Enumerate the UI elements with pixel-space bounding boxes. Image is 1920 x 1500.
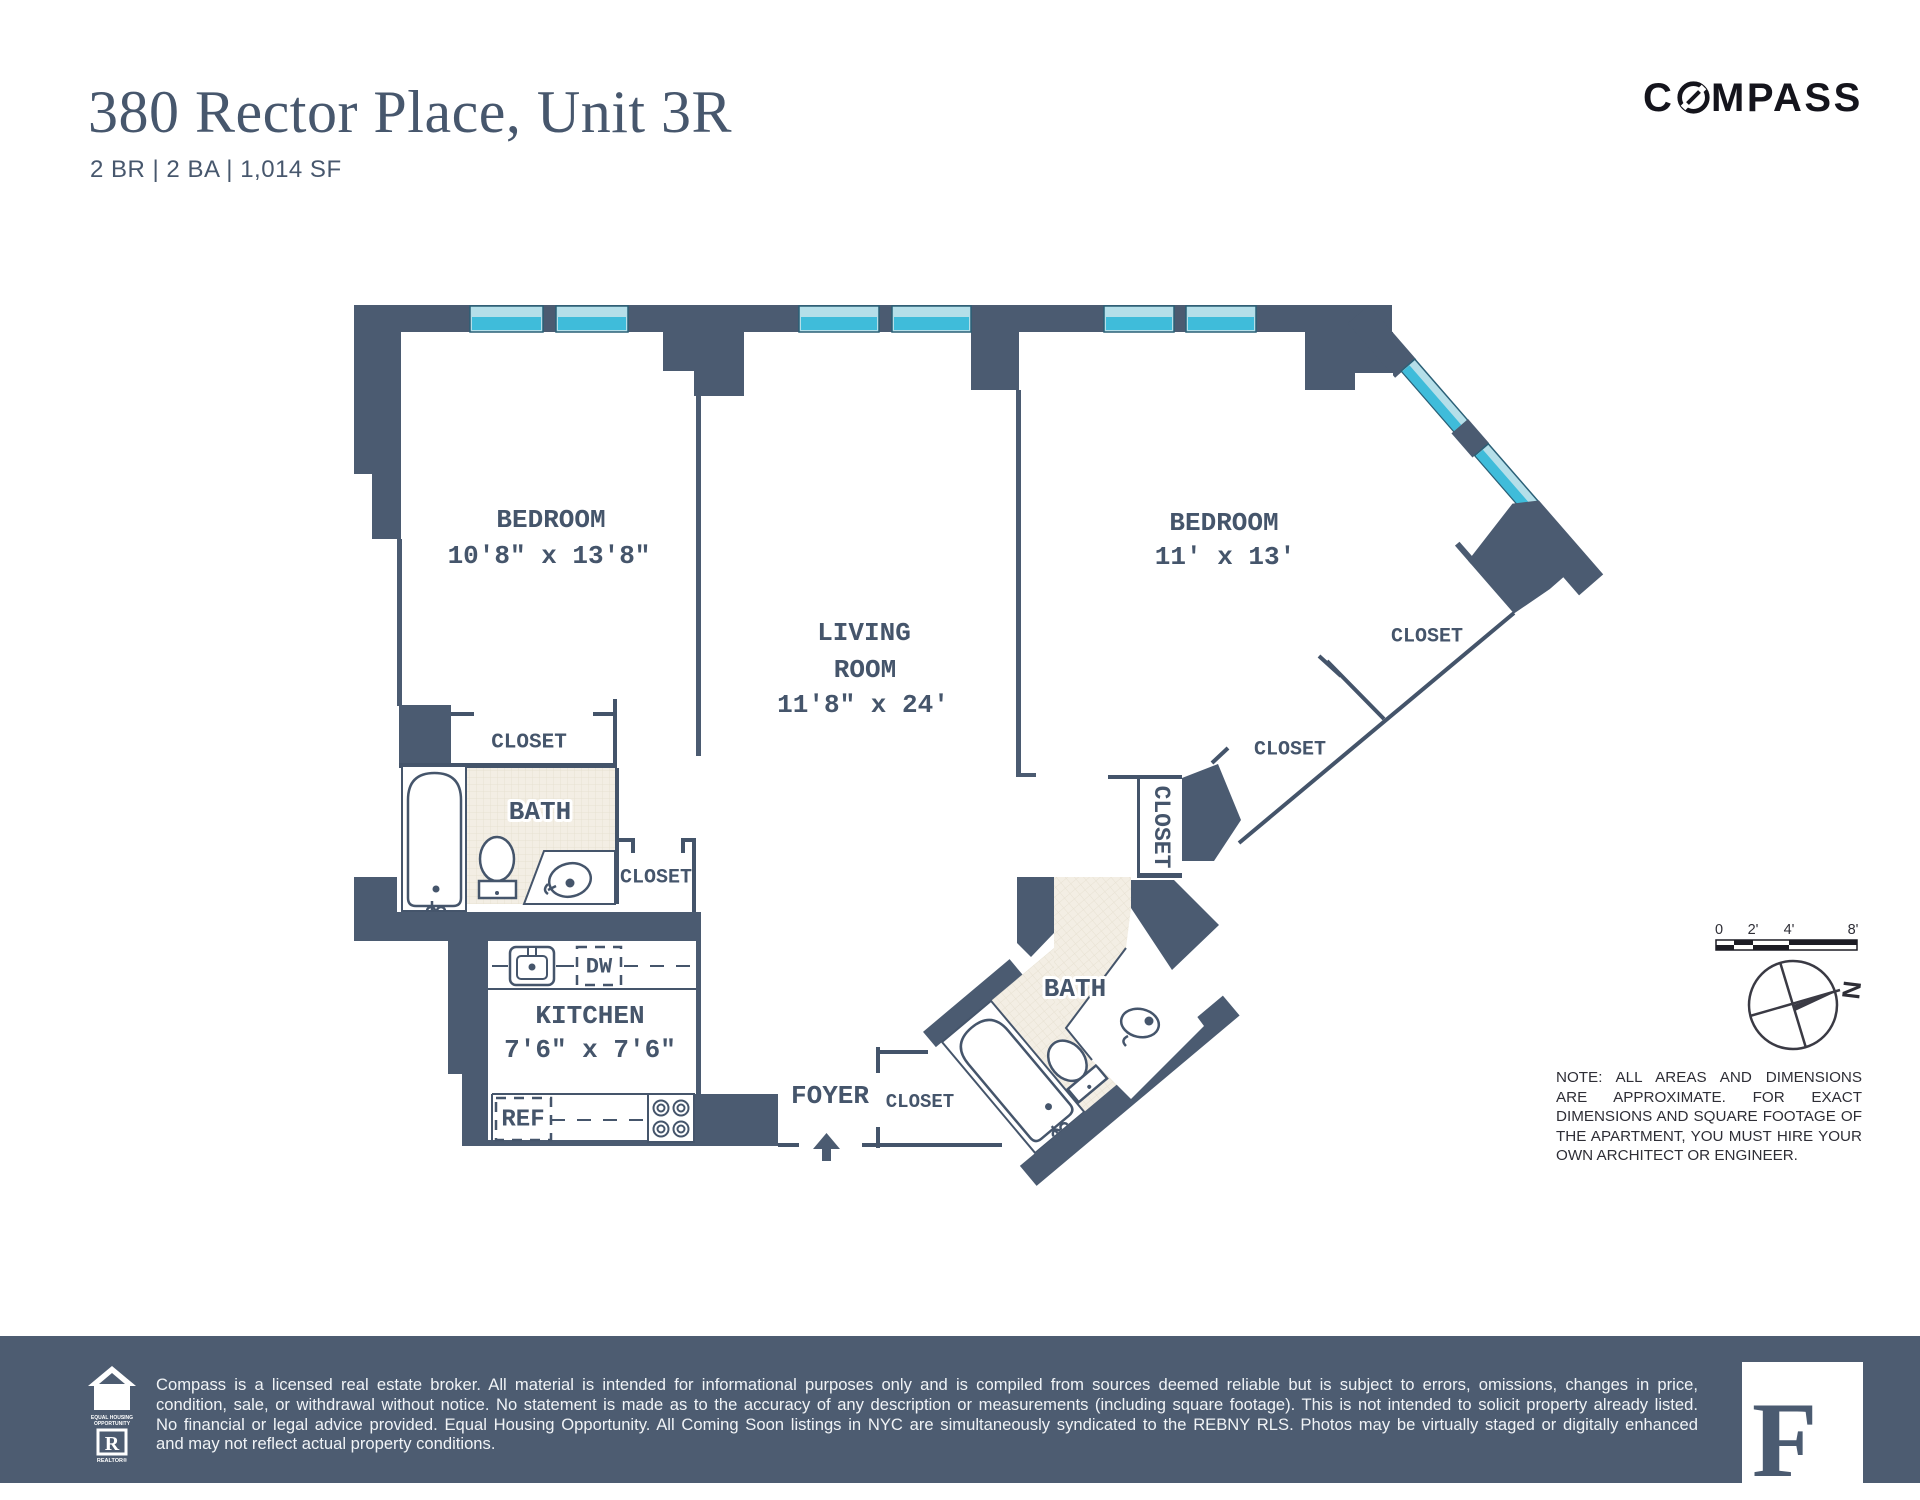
svg-text:DW: DW — [586, 955, 613, 980]
svg-text:11' x 13': 11' x 13' — [1155, 542, 1295, 572]
svg-text:CLOSET: CLOSET — [1391, 626, 1463, 649]
svg-text:KITCHEN: KITCHEN — [535, 1001, 644, 1031]
svg-text:ROOM: ROOM — [834, 655, 896, 685]
svg-text:CLOSET: CLOSET — [886, 1091, 954, 1113]
svg-text:CLOSET: CLOSET — [1148, 786, 1174, 869]
svg-text:BEDROOM: BEDROOM — [496, 505, 605, 535]
svg-text:11'8" x 24': 11'8" x 24' — [777, 690, 949, 720]
svg-text:OPPORTUNITY: OPPORTUNITY — [94, 1421, 131, 1427]
svg-text:LIVING: LIVING — [817, 618, 911, 648]
svg-text:BEDROOM: BEDROOM — [1169, 508, 1278, 538]
svg-text:4': 4' — [1784, 922, 1795, 938]
svg-text:2': 2' — [1748, 922, 1759, 938]
svg-text:FOYER: FOYER — [791, 1081, 869, 1111]
svg-text:7'6" x 7'6": 7'6" x 7'6" — [504, 1035, 676, 1065]
svg-text:REF: REF — [501, 1107, 544, 1134]
svg-text:CLOSET: CLOSET — [1254, 739, 1326, 762]
svg-text:BATH: BATH — [1044, 974, 1106, 1004]
svg-text:8': 8' — [1848, 922, 1859, 938]
svg-text:REALTOR®: REALTOR® — [97, 1457, 127, 1464]
svg-text:0: 0 — [1715, 922, 1723, 938]
svg-text:CLOSET: CLOSET — [620, 867, 692, 890]
svg-text:R: R — [105, 1433, 120, 1455]
svg-text:BATH: BATH — [509, 797, 571, 827]
svg-text:10'8" x 13'8": 10'8" x 13'8" — [448, 541, 651, 571]
svg-text:N: N — [1836, 979, 1866, 1000]
svg-text:CLOSET: CLOSET — [491, 732, 567, 755]
